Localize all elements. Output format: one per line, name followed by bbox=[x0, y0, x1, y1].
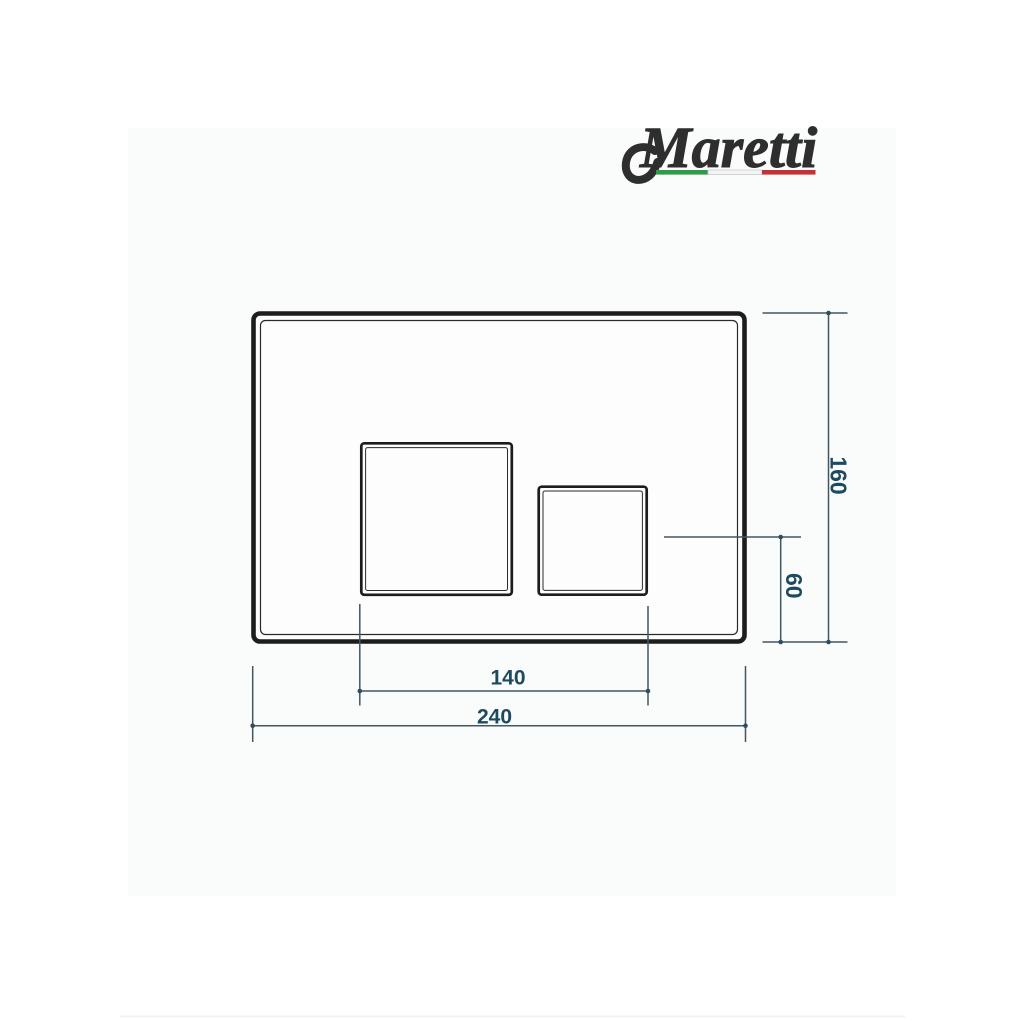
svg-text:60: 60 bbox=[781, 573, 807, 599]
svg-text:240: 240 bbox=[477, 706, 512, 729]
svg-text:160: 160 bbox=[826, 456, 852, 494]
svg-text:140: 140 bbox=[490, 667, 525, 690]
